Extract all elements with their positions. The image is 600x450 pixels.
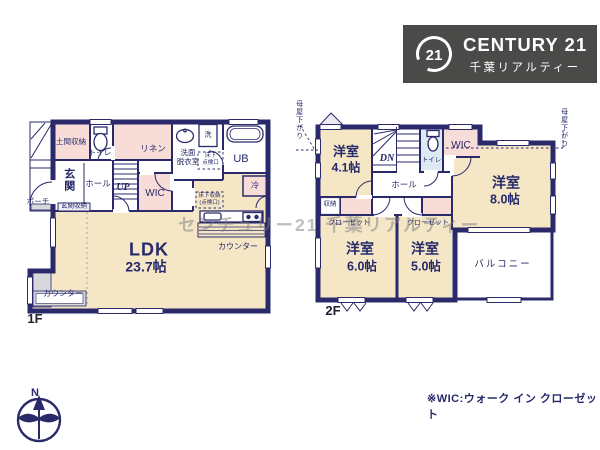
seal-number: 21 bbox=[426, 47, 443, 64]
window bbox=[338, 298, 365, 303]
approach-step bbox=[30, 160, 53, 168]
label-toilet-2f: トイレ bbox=[422, 158, 442, 165]
label-bedroom41: 洋室 bbox=[333, 145, 359, 159]
label-underfloor-hatch-1: 床下 bbox=[205, 154, 216, 160]
label-entrance-storage: 玄関収納 bbox=[61, 204, 87, 211]
label-sloped-ceiling-left: 母屋下がり bbox=[295, 100, 302, 140]
label-washroom-2: 脱衣室 bbox=[177, 158, 200, 166]
window bbox=[378, 125, 399, 130]
label-wic-1f: WIC bbox=[145, 189, 164, 200]
label-washroom-1: 洗面 bbox=[181, 149, 196, 157]
label-storage-2f: 収納 bbox=[324, 202, 337, 209]
label-washer: 洗 bbox=[205, 131, 212, 138]
wic-footnote: ※WIC:ウォーク イン クローゼット bbox=[427, 390, 600, 422]
compass-north-label: N bbox=[31, 387, 39, 399]
window bbox=[551, 196, 556, 214]
label-bedroom60-size: 6.0帖 bbox=[347, 260, 377, 273]
floor2-stairs bbox=[373, 127, 419, 172]
label-ldk: LDK bbox=[129, 241, 169, 260]
label-toilet-1f: トイレ bbox=[89, 149, 112, 157]
floor2-fixtures bbox=[427, 131, 439, 152]
window bbox=[98, 309, 132, 314]
label-hall-1f: ホール bbox=[85, 180, 111, 189]
opening-chevrons bbox=[341, 303, 433, 311]
century21-logo: 21 CENTURY 21 千葉リアルティー bbox=[403, 25, 597, 83]
label-linen: リネン bbox=[140, 145, 166, 154]
window bbox=[316, 163, 321, 178]
century21-seal-icon: 21 bbox=[413, 33, 455, 75]
window bbox=[551, 163, 556, 179]
label-window-counter: カウンター bbox=[43, 290, 83, 298]
toilet-tank-2f bbox=[427, 131, 439, 137]
window bbox=[51, 218, 56, 247]
balcony-opening bbox=[487, 298, 521, 303]
label-doma-storage: 土間収納 bbox=[56, 138, 86, 146]
label-underfloor-storage-2: (点検口) bbox=[199, 201, 219, 207]
window bbox=[136, 309, 163, 314]
logo-brand: CENTURY 21 bbox=[463, 34, 587, 56]
room-linen bbox=[113, 122, 172, 160]
window bbox=[449, 125, 472, 130]
floorplan-page: センチュリー21 千葉リアルティー 21 CENTURY 21 千葉リアルティー… bbox=[0, 0, 600, 450]
window bbox=[320, 125, 341, 130]
window bbox=[28, 277, 33, 304]
label-porch: ポーチ bbox=[27, 198, 50, 206]
label-hall-2f: ホール bbox=[391, 181, 417, 190]
label-entrance: 玄関 bbox=[62, 168, 74, 192]
window bbox=[266, 246, 271, 268]
window bbox=[316, 238, 321, 268]
label-fridge: 冷 bbox=[251, 182, 259, 190]
label-stairs-down: DN bbox=[380, 154, 394, 165]
label-underfloor-hatch-2: 点検口 bbox=[202, 161, 219, 167]
label-balcony: バルコニー bbox=[474, 260, 531, 270]
label-sloped-ceiling-right: 母屋下がり bbox=[560, 108, 567, 148]
label-closet-right: クローゼット bbox=[407, 219, 449, 226]
label-bedroom80: 洋室 bbox=[492, 176, 520, 191]
label-bedroom50-size: 5.0帖 bbox=[411, 260, 441, 273]
label-bedroom60: 洋室 bbox=[346, 242, 374, 257]
label-floor1: 1F bbox=[27, 312, 42, 326]
window bbox=[497, 141, 529, 146]
label-underfloor-storage-1: 床下収納 bbox=[198, 194, 220, 200]
label-bedroom50: 洋室 bbox=[411, 242, 439, 257]
label-bedroom41-size: 4.1帖 bbox=[332, 162, 361, 175]
label-wic-2f: WIC bbox=[451, 141, 470, 152]
label-closet-left: クローゼット bbox=[328, 219, 370, 226]
window bbox=[406, 298, 433, 303]
label-ldk-size: 23.7帖 bbox=[125, 260, 166, 275]
toilet-bowl-2f bbox=[428, 137, 438, 151]
compass-icon: N bbox=[12, 384, 66, 444]
label-floor2: 2F bbox=[325, 304, 340, 318]
logo-company: 千葉リアルティー bbox=[463, 59, 587, 75]
label-kitchen-counter: カウンター bbox=[218, 243, 258, 251]
label-stairs-up: UP bbox=[116, 183, 129, 194]
label-bedroom80-size: 8.0帖 bbox=[490, 193, 520, 206]
window bbox=[90, 120, 111, 125]
window bbox=[229, 120, 258, 125]
label-bath: UB bbox=[233, 154, 248, 166]
